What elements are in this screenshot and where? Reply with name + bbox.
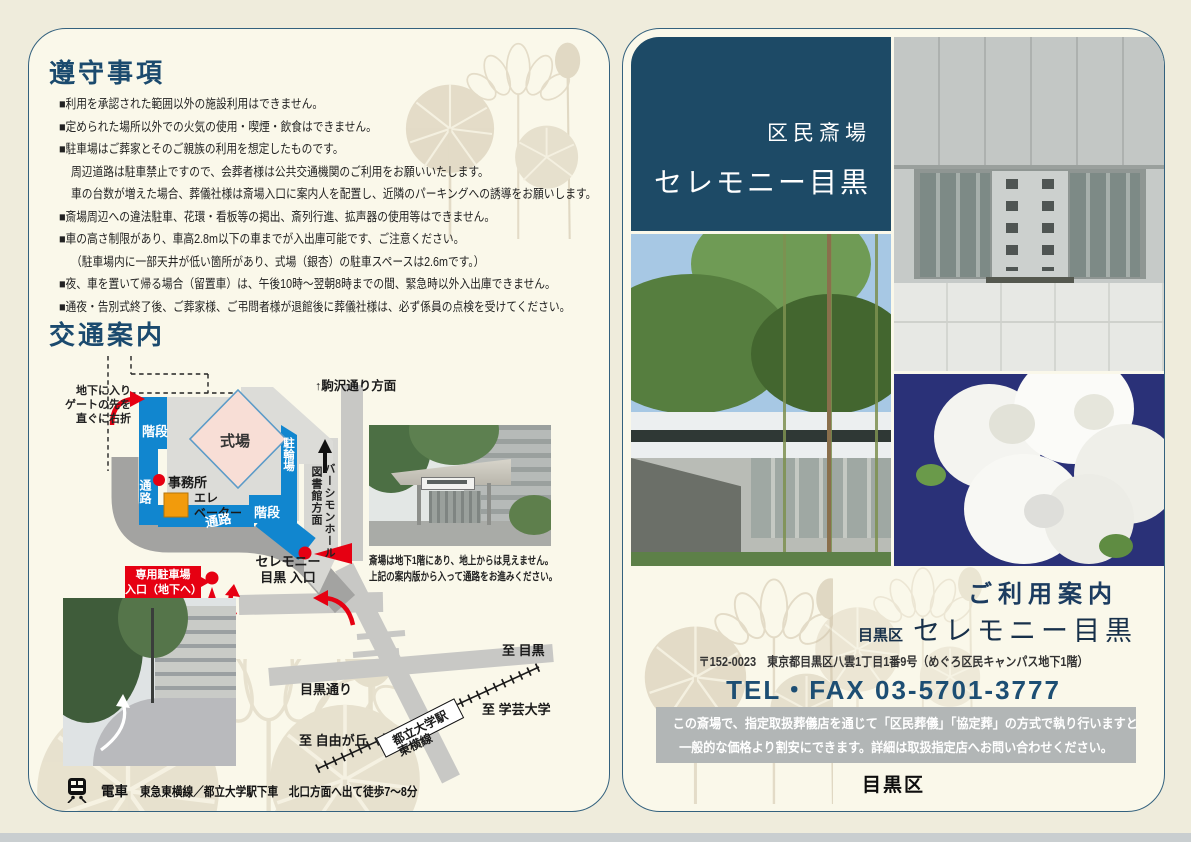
hall-type: 区民斎場: [767, 117, 871, 147]
map-label-stairs-top: 階段: [142, 421, 168, 440]
flowers-photo: [894, 374, 1165, 566]
rule-item: 周辺道路は駐車禁止ですので、会葬者様は公共交通機関のご利用をお願いいたします。: [59, 161, 596, 184]
map-turn-note: 地下に入りゲートの先を直ぐに右折: [47, 384, 131, 426]
elevator-marker: [164, 493, 188, 517]
map-label-bicycle: 駐輪場: [280, 437, 296, 501]
rules-title: 遵守事項: [49, 53, 165, 90]
access-title: 交通案内: [49, 315, 165, 352]
map-parking-callout: 専用駐車場入口（地下へ）: [125, 566, 201, 601]
map-label-office: 事務所: [168, 472, 207, 491]
map-label-to-gakugei: 至 学芸大学: [482, 699, 551, 718]
map-label-meguro-dori: 目黒通り: [300, 679, 352, 698]
page-right: 区民斎場 セレモニー目黒: [622, 28, 1165, 812]
scan-edge: [0, 833, 1191, 842]
page-left: 遵守事項 ■利用を承認された範囲以外の施設利用はできません。 ■定められた場所以…: [28, 28, 610, 812]
rule-item: 車の台数が増えた場合、葬儀社様は斎場入口に案内人を配置し、近隣のパーキングへの誘…: [59, 183, 596, 206]
guide-title: ご利用案内: [968, 574, 1118, 609]
rule-item: ■斎場周辺への違法駐車、花環・看板等の掲出、斎列行進、拡声器の使用等はできません…: [59, 206, 596, 229]
train-text: 東急東横線／都立大学駅下車 北口方面へ出て徒歩7～8分: [140, 781, 417, 800]
map-label-stairs-right: 階段: [254, 502, 280, 521]
rule-item: ■駐車場はご葬家とそのご親族の利用を想定したものです。: [59, 138, 596, 161]
facility-name-row: 目黒区 セレモニー目黒: [858, 609, 1137, 648]
rule-item: （駐車場内に一部天井が低い箇所があり、式場（銀杏）の駐車スペースは2.6mです。…: [59, 251, 596, 274]
map-label-passage-left: 通路: [137, 479, 154, 527]
rules-list: ■利用を承認された範囲以外の施設利用はできません。 ■定められた場所以外での火気…: [59, 93, 596, 318]
rule-item: ■定められた場所以外での火気の使用・喫煙・飲食はできません。: [59, 116, 596, 139]
rule-item: ■車の高さ制限があり、車高2.8m以下の車までが入出庫可能です、ご注意ください。: [59, 228, 596, 251]
entrance-photo: [894, 37, 1165, 371]
tel-fax: TEL・FAX 03-5701-3777: [623, 670, 1164, 707]
train-label: 電車: [101, 780, 128, 800]
building-photo: [631, 234, 891, 566]
brochure-scan: 遵守事項 ■利用を承認された範囲以外の施設利用はできません。 ■定められた場所以…: [0, 0, 1191, 842]
photo-caption: 斎場は地下1階にあり、地上からは見えません。上記の案内版から入って通路をお進みく…: [369, 553, 557, 585]
train-access-row: 電車 東急東横線／都立大学駅下車 北口方面へ出て徒歩7～8分: [65, 777, 466, 803]
map-label-entrance: セレモニー目黒 入口: [245, 554, 331, 586]
facility-name: セレモニー目黒: [913, 609, 1137, 648]
publisher: 目黒区: [623, 770, 1164, 797]
hall-name: セレモニー目黒: [654, 161, 871, 201]
rule-item: ■利用を承認された範囲以外の施設利用はできません。: [59, 93, 596, 116]
address-line: 〒152-0023 東京都目黒区八雲1丁目1番9号（めぐろ区民キャンパス地下1階…: [623, 651, 1164, 671]
notice-box: この斎場で、指定取扱葬儀店を通じて「区民葬儀」「協定葬」の方式で執り行いますと …: [656, 707, 1136, 763]
cover-title-box: 区民斎場 セレモニー目黒: [631, 37, 891, 231]
ward-label: 目黒区: [858, 624, 903, 645]
map-label-to-meguro: 至 目黒: [502, 640, 545, 659]
street-photo: [63, 598, 236, 766]
map-label-to-jiyugaoka: 至 自由が丘: [299, 730, 368, 749]
map-label-hall: 式場: [220, 430, 250, 451]
map-label-library: 図書館方面: [308, 466, 324, 566]
train-icon: [65, 777, 89, 803]
underpass-photo: [369, 425, 551, 546]
map-label-komazawa: ↑駒沢通り方面: [315, 375, 396, 394]
rule-item: ■夜、車を置いて帰る場合（留置車）は、午後10時～翌朝8時までの間、緊急時以外入…: [59, 273, 596, 296]
